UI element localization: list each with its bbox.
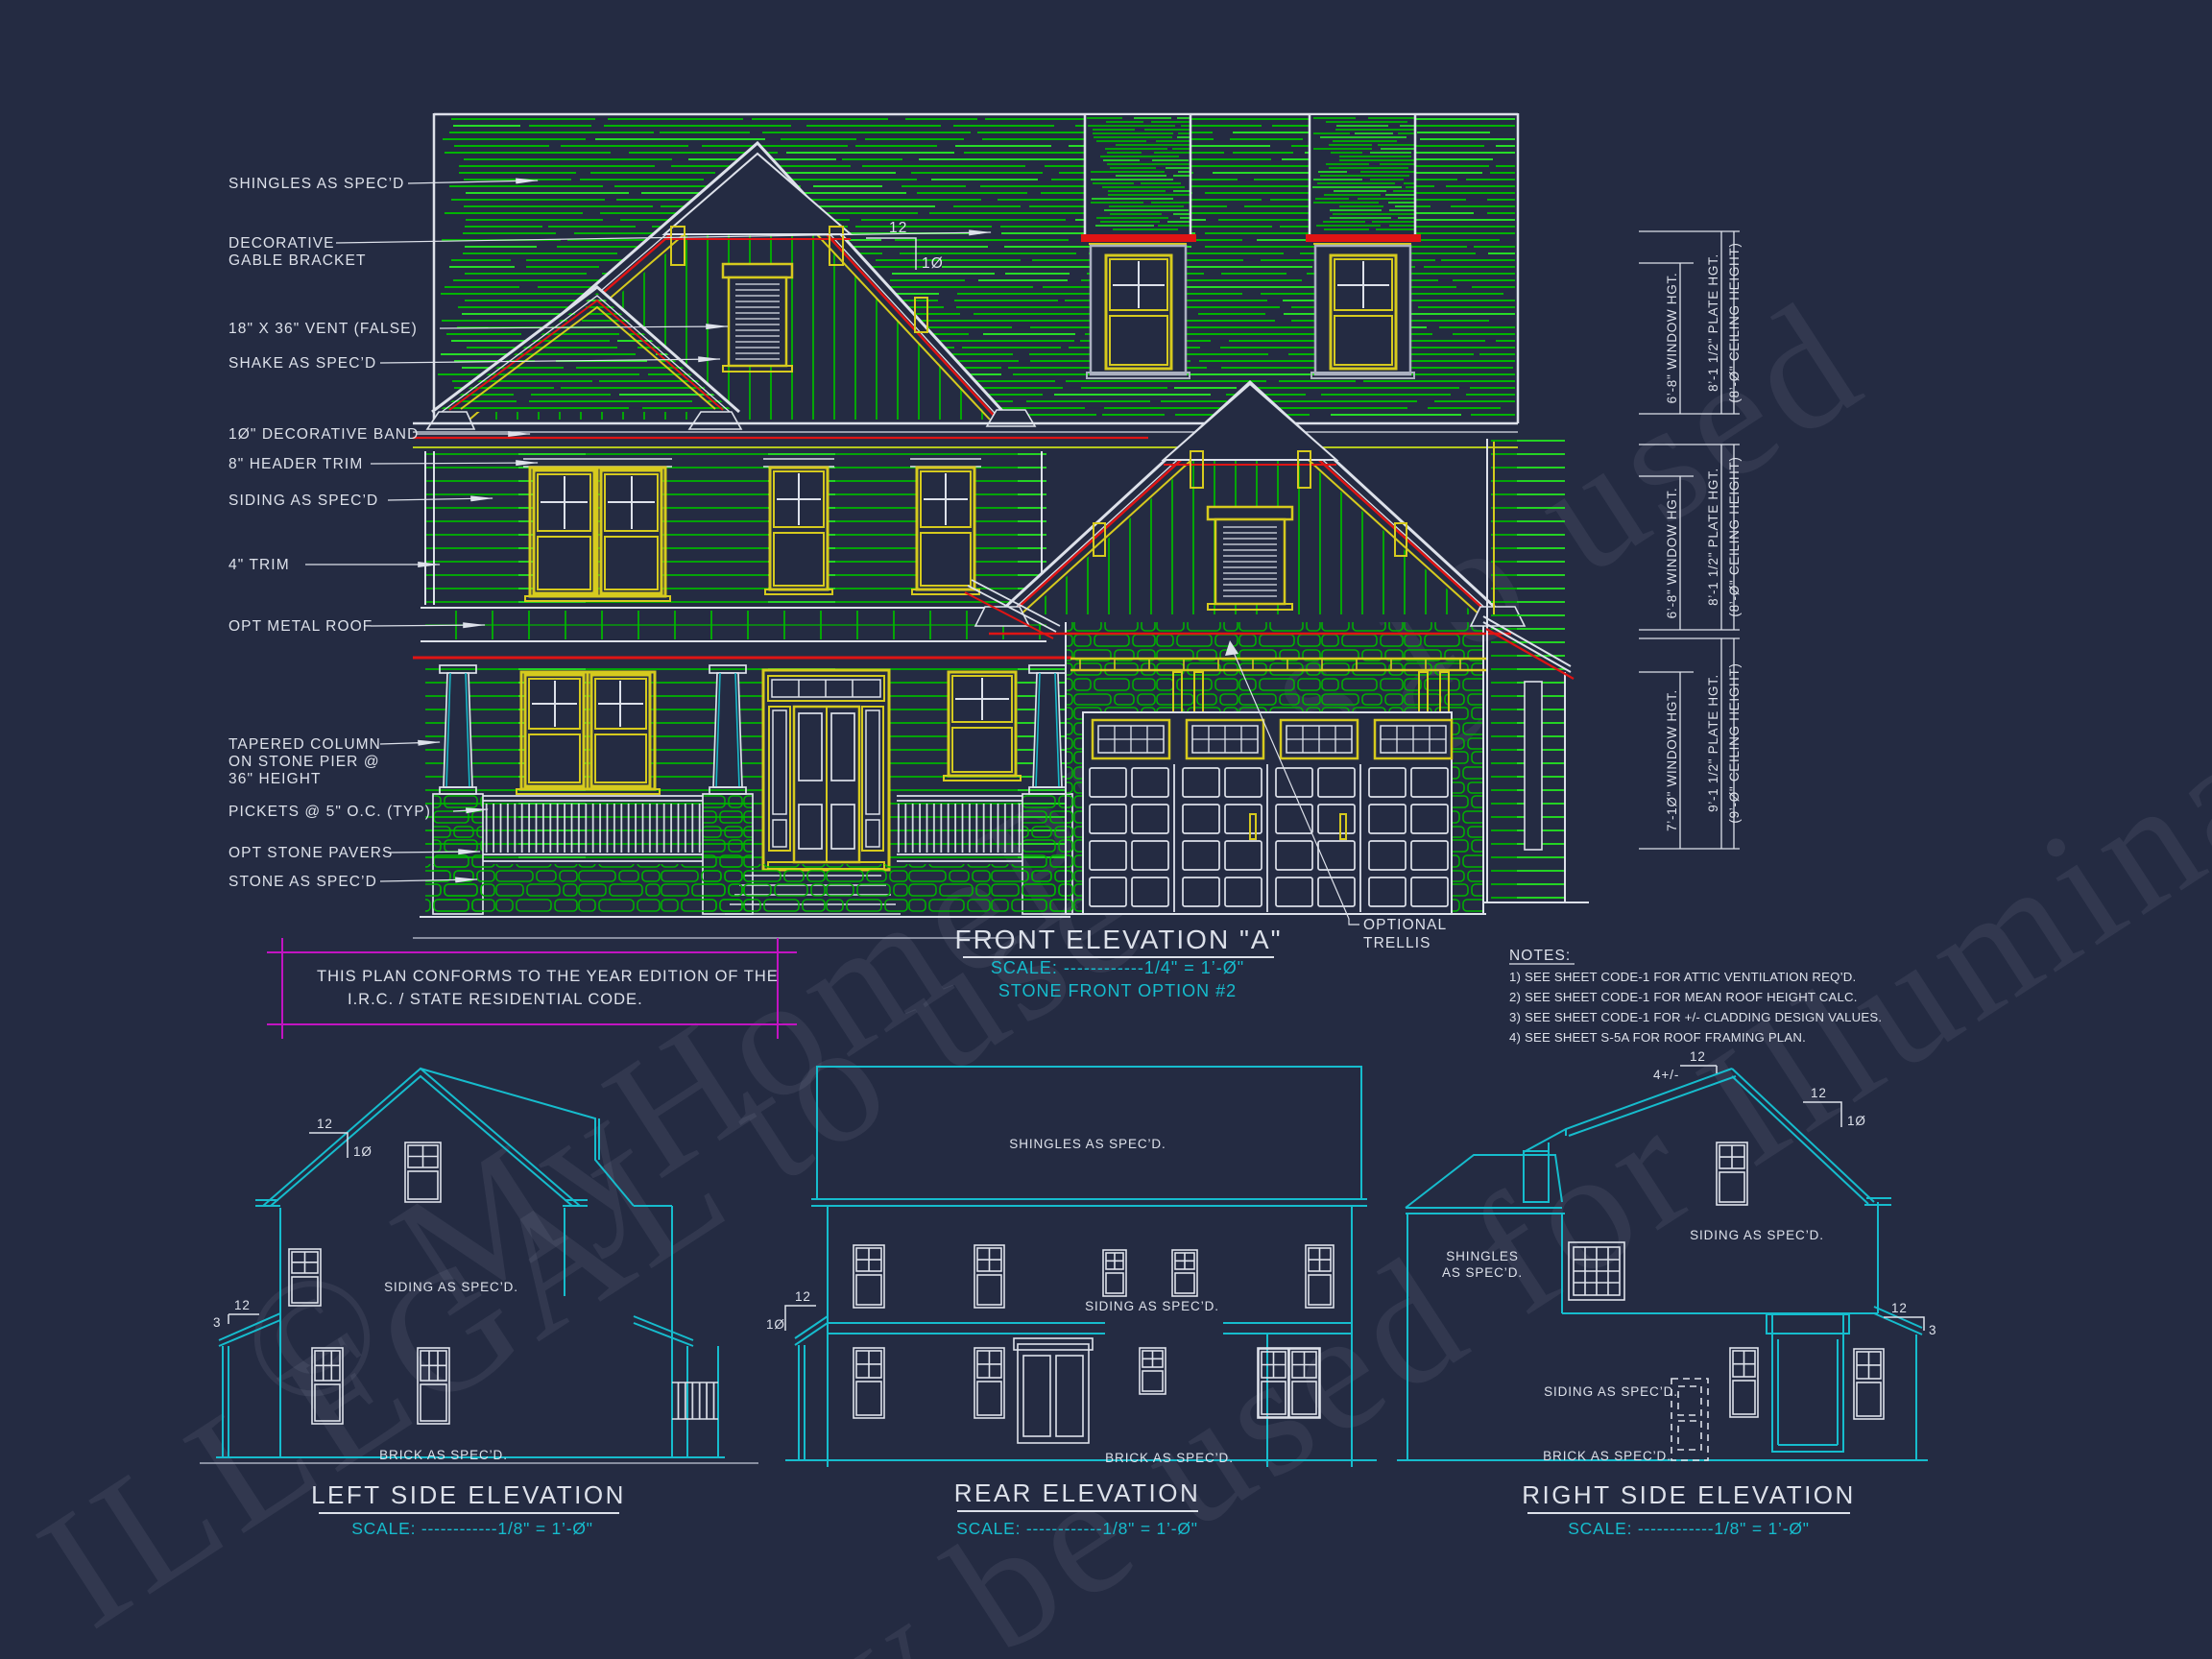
- svg-text:7’-1Ø" WINDOW HGT.: 7’-1Ø" WINDOW HGT.: [1665, 689, 1679, 831]
- svg-text:ON STONE PIER @: ON STONE PIER @: [228, 754, 380, 770]
- svg-text:1Ø: 1Ø: [1847, 1114, 1866, 1128]
- svg-text:(9’-Ø" CEILING HEIGHT): (9’-Ø" CEILING HEIGHT): [1727, 662, 1742, 823]
- svg-text:4" TRIM: 4" TRIM: [228, 557, 290, 573]
- svg-text:SCALE: ------------1/8" = 1’-Ø: SCALE: ------------1/8" = 1’-Ø": [956, 1519, 1198, 1538]
- svg-text:STONE AS SPEC’D: STONE AS SPEC’D: [228, 874, 377, 890]
- svg-text:1Ø: 1Ø: [922, 255, 944, 272]
- svg-text:SIDING AS SPEC’D.: SIDING AS SPEC’D.: [1544, 1384, 1678, 1399]
- svg-text:STONE FRONT OPTION #2: STONE FRONT OPTION #2: [998, 981, 1237, 1000]
- svg-text:GABLE BRACKET: GABLE BRACKET: [228, 252, 367, 269]
- svg-text:SCALE: ------------1/4" = 1’-Ø: SCALE: ------------1/4" = 1’-Ø": [991, 958, 1244, 977]
- svg-text:4) SEE SHEET S-5A FOR ROOF FR: 4) SEE SHEET S-5A FOR ROOF FRAMING PLAN.: [1509, 1030, 1806, 1045]
- svg-text:12: 12: [234, 1298, 251, 1312]
- svg-text:6’-8" WINDOW HGT.: 6’-8" WINDOW HGT.: [1665, 488, 1679, 619]
- svg-text:12: 12: [1811, 1086, 1827, 1100]
- svg-text:(8’-Ø" CEILING HEIGHT): (8’-Ø" CEILING HEIGHT): [1727, 242, 1742, 402]
- svg-text:I.R.C. / STATE RESIDENTIAL COD: I.R.C. / STATE RESIDENTIAL CODE.: [348, 991, 643, 1008]
- svg-text:SCALE: ------------1/8" = 1’-Ø: SCALE: ------------1/8" = 1’-Ø": [351, 1519, 593, 1538]
- svg-text:2) SEE SHEET CODE-1 FOR MEAN: 2) SEE SHEET CODE-1 FOR MEAN ROOF HEIGHT…: [1509, 990, 1858, 1004]
- svg-text:SIDING AS SPEC’D: SIDING AS SPEC’D: [228, 493, 378, 509]
- svg-text:BRICK AS SPEC’D.: BRICK AS SPEC’D.: [379, 1448, 508, 1462]
- svg-text:SHAKE AS SPEC’D: SHAKE AS SPEC’D: [228, 355, 376, 372]
- svg-text:3: 3: [1929, 1323, 1936, 1337]
- svg-text:8’-1 1/2" PLATE HGT.: 8’-1 1/2" PLATE HGT.: [1706, 253, 1720, 392]
- svg-text:1Ø: 1Ø: [766, 1317, 785, 1332]
- svg-text:SHINGLES AS SPEC’D: SHINGLES AS SPEC’D: [228, 176, 404, 192]
- svg-text:LEFT SIDE ELEVATION: LEFT SIDE ELEVATION: [311, 1480, 626, 1509]
- svg-text:SHINGLES: SHINGLES: [1446, 1249, 1518, 1263]
- svg-text:TAPERED COLUMN: TAPERED COLUMN: [228, 736, 381, 753]
- svg-text:RIGHT SIDE ELEVATION: RIGHT SIDE ELEVATION: [1522, 1480, 1856, 1509]
- svg-text:OPTIONAL: OPTIONAL: [1363, 917, 1447, 933]
- svg-text:NOTES:: NOTES:: [1509, 948, 1571, 964]
- svg-text:FRONT ELEVATION "A": FRONT ELEVATION "A": [954, 925, 1282, 954]
- svg-text:6’-8" WINDOW HGT.: 6’-8" WINDOW HGT.: [1665, 273, 1679, 404]
- svg-text:OPT METAL ROOF: OPT METAL ROOF: [228, 618, 373, 635]
- svg-text:TRELLIS: TRELLIS: [1363, 935, 1431, 951]
- svg-text:DECORATIVE: DECORATIVE: [228, 235, 335, 252]
- svg-text:SHINGLES AS SPEC’D.: SHINGLES AS SPEC’D.: [1009, 1137, 1166, 1151]
- svg-text:4+/-: 4+/-: [1653, 1068, 1679, 1082]
- svg-text:8" HEADER TRIM: 8" HEADER TRIM: [228, 456, 363, 472]
- svg-text:REAR ELEVATION: REAR ELEVATION: [954, 1479, 1201, 1507]
- svg-text:12: 12: [1891, 1301, 1908, 1315]
- svg-text:OPT STONE PAVERS: OPT STONE PAVERS: [228, 845, 394, 861]
- svg-text:1) SEE SHEET CODE-1 FOR ATTIC: 1) SEE SHEET CODE-1 FOR ATTIC VENTILATIO…: [1509, 970, 1856, 984]
- svg-text:8’-1 1/2" PLATE HGT.: 8’-1 1/2" PLATE HGT.: [1706, 468, 1720, 606]
- svg-text:3) SEE SHEET CODE-1 FOR +/- C: 3) SEE SHEET CODE-1 FOR +/- CLADDING DES…: [1509, 1010, 1882, 1024]
- svg-text:(8’-Ø" CEILING HEIGHT): (8’-Ø" CEILING HEIGHT): [1727, 456, 1742, 616]
- svg-text:SIDING AS SPEC’D.: SIDING AS SPEC’D.: [1690, 1228, 1824, 1242]
- svg-text:36" HEIGHT: 36" HEIGHT: [228, 771, 322, 787]
- svg-text:SIDING AS SPEC’D.: SIDING AS SPEC’D.: [384, 1280, 518, 1294]
- svg-text:SIDING AS SPEC’D.: SIDING AS SPEC’D.: [1085, 1299, 1219, 1313]
- svg-text:12: 12: [317, 1117, 333, 1131]
- svg-text:SCALE: ------------1/8" = 1’-Ø: SCALE: ------------1/8" = 1’-Ø": [1568, 1519, 1810, 1538]
- svg-text:THIS PLAN CONFORMS TO THE YEAR: THIS PLAN CONFORMS TO THE YEAR EDITION O…: [317, 968, 779, 985]
- svg-text:BRICK AS SPEC’D.: BRICK AS SPEC’D.: [1543, 1449, 1671, 1463]
- svg-text:18" X 36" VENT (FALSE): 18" X 36" VENT (FALSE): [228, 321, 418, 337]
- svg-text:12: 12: [1690, 1049, 1706, 1064]
- svg-text:PICKETS @ 5" O.C. (TYP): PICKETS @ 5" O.C. (TYP): [228, 804, 431, 820]
- svg-text:12: 12: [795, 1289, 811, 1304]
- svg-text:3: 3: [213, 1315, 221, 1330]
- svg-text:1Ø" DECORATIVE BAND: 1Ø" DECORATIVE BAND: [228, 426, 419, 443]
- svg-text:9’-1 1/2" PLATE HGT.: 9’-1 1/2" PLATE HGT.: [1706, 674, 1720, 812]
- svg-text:1Ø: 1Ø: [353, 1144, 373, 1159]
- svg-text:AS SPEC’D.: AS SPEC’D.: [1442, 1265, 1523, 1280]
- svg-text:BRICK AS SPEC’D.: BRICK AS SPEC’D.: [1105, 1451, 1234, 1465]
